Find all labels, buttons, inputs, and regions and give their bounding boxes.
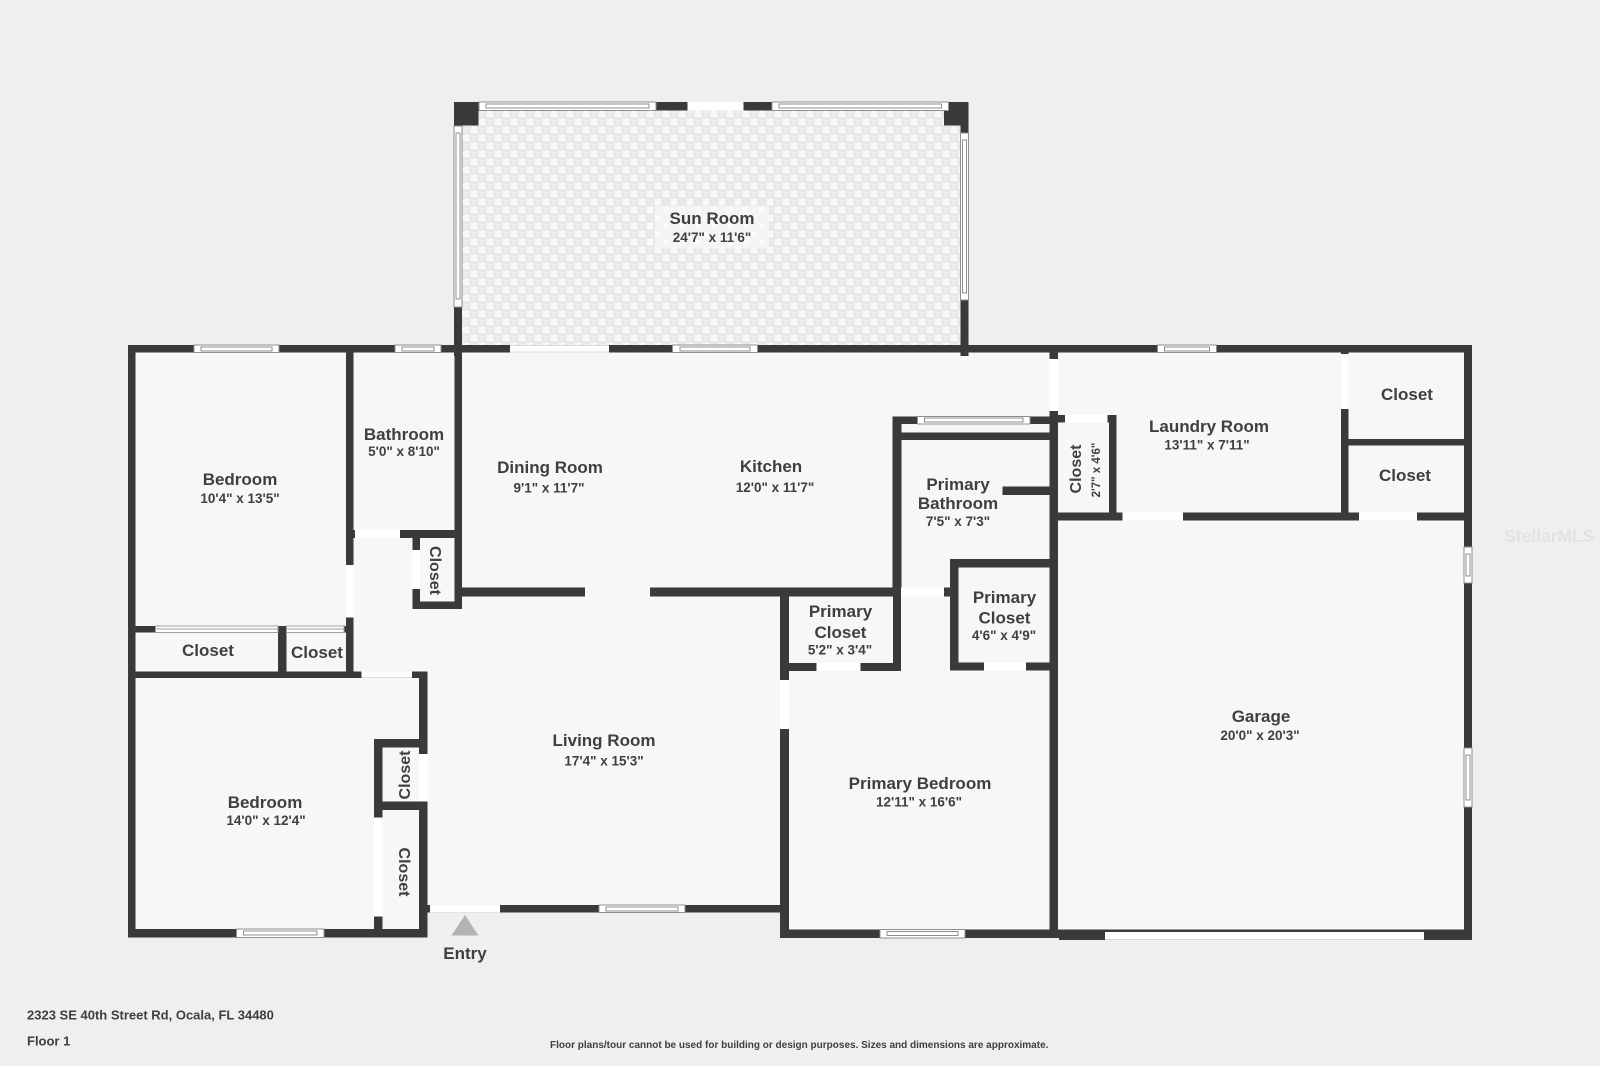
svg-text:Living Room: Living Room bbox=[553, 731, 656, 750]
svg-text:10'4" x 13'5": 10'4" x 13'5" bbox=[200, 491, 279, 506]
svg-text:Primary: Primary bbox=[973, 588, 1037, 607]
svg-text:StellarMLS: StellarMLS bbox=[1504, 526, 1594, 546]
svg-text:24'7" x 11'6": 24'7" x 11'6" bbox=[673, 230, 752, 245]
svg-text:Bathroom: Bathroom bbox=[364, 425, 444, 444]
svg-text:14'0" x 12'4": 14'0" x 12'4" bbox=[226, 813, 305, 828]
svg-text:Dining Room: Dining Room bbox=[497, 458, 603, 477]
svg-text:Closet: Closet bbox=[291, 643, 343, 662]
svg-text:Primary: Primary bbox=[809, 602, 873, 621]
svg-text:2323 SE 40th Street Rd, Ocala,: 2323 SE 40th Street Rd, Ocala, FL 34480 bbox=[27, 1008, 274, 1023]
svg-text:Bathroom: Bathroom bbox=[918, 494, 998, 513]
svg-text:Closet: Closet bbox=[815, 623, 867, 642]
svg-text:Laundry Room: Laundry Room bbox=[1149, 417, 1269, 436]
svg-text:Garage: Garage bbox=[1232, 707, 1291, 726]
svg-text:7'5" x 7'3": 7'5" x 7'3" bbox=[926, 514, 990, 529]
svg-text:Closet: Closet bbox=[1379, 466, 1431, 485]
svg-text:Kitchen: Kitchen bbox=[740, 457, 802, 476]
svg-text:Closet: Closet bbox=[979, 609, 1031, 628]
svg-text:20'0" x 20'3": 20'0" x 20'3" bbox=[1220, 728, 1299, 743]
svg-text:Entry: Entry bbox=[443, 944, 487, 963]
svg-text:Closet: Closet bbox=[1068, 444, 1085, 494]
svg-text:Floor plans/tour cannot be use: Floor plans/tour cannot be used for buil… bbox=[550, 1040, 1049, 1051]
svg-text:4'6" x 4'9": 4'6" x 4'9" bbox=[972, 628, 1036, 643]
svg-text:12'11" x 16'6": 12'11" x 16'6" bbox=[876, 795, 962, 810]
svg-text:Closet: Closet bbox=[397, 750, 414, 800]
svg-text:Sun Room: Sun Room bbox=[670, 209, 755, 228]
svg-text:5'0" x 8'10": 5'0" x 8'10" bbox=[368, 444, 440, 459]
svg-text:Primary: Primary bbox=[926, 475, 990, 494]
svg-text:9'1" x 11'7": 9'1" x 11'7" bbox=[513, 481, 584, 496]
svg-text:2'7" x 4'6": 2'7" x 4'6" bbox=[1091, 443, 1103, 498]
svg-text:Bedroom: Bedroom bbox=[203, 470, 278, 489]
svg-text:Closet: Closet bbox=[182, 641, 234, 660]
svg-text:Closet: Closet bbox=[395, 848, 412, 898]
svg-text:13'11" x 7'11": 13'11" x 7'11" bbox=[1164, 438, 1249, 453]
svg-text:12'0" x 11'7": 12'0" x 11'7" bbox=[736, 480, 815, 495]
svg-text:Floor 1: Floor 1 bbox=[27, 1034, 70, 1049]
svg-text:17'4" x 15'3": 17'4" x 15'3" bbox=[564, 754, 643, 769]
svg-text:Closet: Closet bbox=[426, 546, 443, 596]
svg-text:Bedroom: Bedroom bbox=[228, 793, 303, 812]
svg-text:5'2" x 3'4": 5'2" x 3'4" bbox=[808, 643, 872, 658]
svg-text:Primary Bedroom: Primary Bedroom bbox=[849, 774, 992, 793]
svg-text:Closet: Closet bbox=[1381, 385, 1433, 404]
